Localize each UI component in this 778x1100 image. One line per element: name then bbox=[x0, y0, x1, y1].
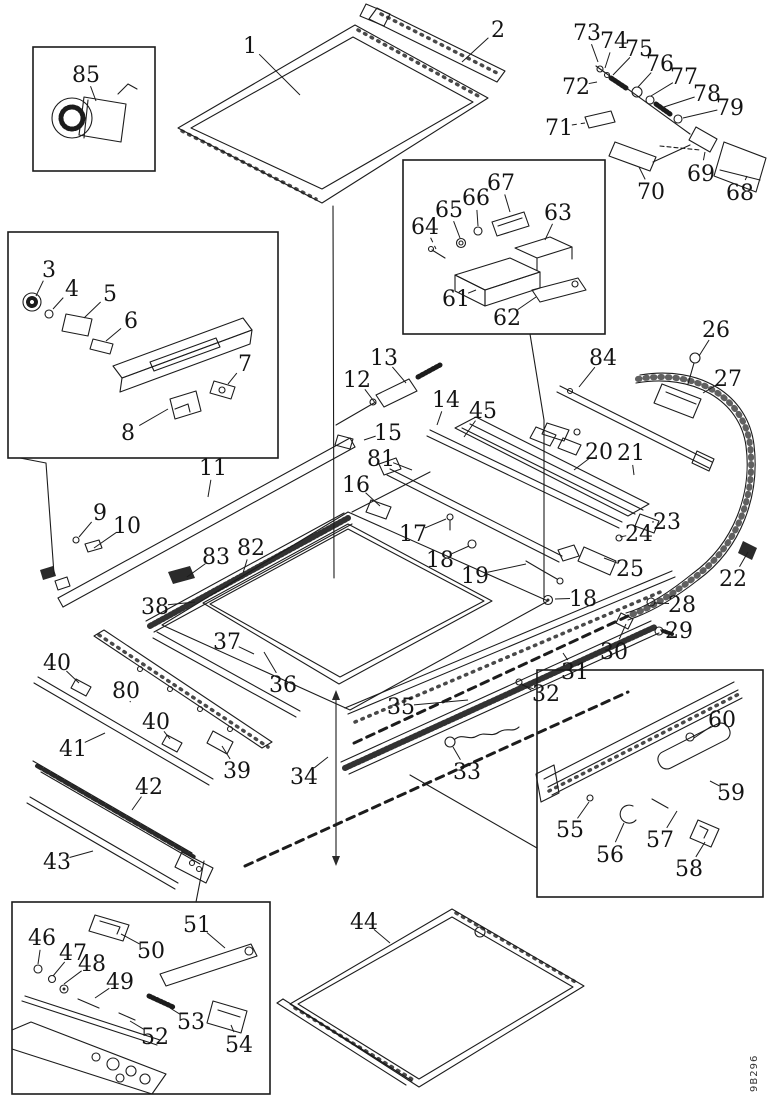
callout-79: 79 bbox=[716, 96, 744, 121]
callout-40: 40 bbox=[43, 651, 71, 676]
leader-line-35 bbox=[414, 700, 468, 705]
callout-50: 50 bbox=[137, 939, 165, 964]
leader-line-78 bbox=[664, 97, 695, 107]
callout-67: 67 bbox=[487, 171, 515, 196]
callout-30: 30 bbox=[600, 640, 628, 665]
leader-line-18 bbox=[452, 546, 469, 554]
leader-line-9 bbox=[79, 522, 92, 537]
callout-36: 36 bbox=[269, 673, 297, 698]
diagram-page: 1234567891011121314151617181918202122232… bbox=[0, 0, 778, 1100]
callout-20: 20 bbox=[585, 440, 613, 465]
callout-53: 53 bbox=[177, 1010, 205, 1035]
glass-panel bbox=[178, 25, 488, 203]
figure-code: 9B296 bbox=[749, 1055, 760, 1092]
callout-5: 5 bbox=[103, 282, 117, 307]
callout-17: 17 bbox=[399, 522, 427, 547]
callout-29: 29 bbox=[665, 619, 693, 644]
leader-line-7 bbox=[228, 373, 237, 384]
callout-12: 12 bbox=[343, 368, 371, 393]
callout-24: 24 bbox=[625, 522, 653, 547]
callout-18: 18 bbox=[569, 587, 597, 612]
leader-line-17 bbox=[425, 519, 446, 528]
callout-31: 31 bbox=[561, 660, 589, 685]
leader-line-19 bbox=[488, 564, 526, 572]
leader-line-14 bbox=[437, 411, 442, 425]
callout-42: 42 bbox=[135, 775, 163, 800]
callout-54: 54 bbox=[225, 1033, 253, 1058]
leader-line-57 bbox=[667, 811, 677, 828]
leader-line-71 bbox=[572, 123, 585, 125]
callout-15: 15 bbox=[374, 421, 402, 446]
leader-line-65 bbox=[454, 221, 460, 238]
leader-line-56 bbox=[615, 823, 624, 842]
leader-line-5 bbox=[84, 302, 101, 318]
callout-27: 27 bbox=[714, 367, 742, 392]
diagram-artwork bbox=[12, 4, 766, 1094]
leader-line-11 bbox=[208, 480, 211, 497]
callout-60: 60 bbox=[708, 708, 736, 733]
callout-3: 3 bbox=[42, 258, 56, 283]
callout-21: 21 bbox=[617, 441, 645, 466]
callout-35: 35 bbox=[387, 695, 415, 720]
leader-line-66 bbox=[477, 210, 478, 226]
callout-56: 56 bbox=[596, 843, 624, 868]
callout-39: 39 bbox=[223, 759, 251, 784]
sunroof-frame bbox=[153, 512, 548, 717]
leader-line-2 bbox=[462, 38, 488, 62]
callout-44: 44 bbox=[350, 910, 378, 935]
callout-55: 55 bbox=[556, 818, 584, 843]
callout-28: 28 bbox=[668, 593, 696, 618]
leader-line-69 bbox=[703, 152, 705, 160]
leader-line-4 bbox=[53, 298, 63, 309]
callout-52: 52 bbox=[141, 1025, 169, 1050]
leader-line-55 bbox=[577, 802, 589, 818]
callout-25: 25 bbox=[616, 557, 644, 582]
callout-13: 13 bbox=[370, 346, 398, 371]
callout-57: 57 bbox=[646, 828, 674, 853]
leader-line-46 bbox=[38, 950, 40, 964]
callout-58: 58 bbox=[675, 857, 703, 882]
leader-line-79 bbox=[683, 110, 717, 118]
cable-clip-71 bbox=[585, 111, 615, 128]
callout-2: 2 bbox=[491, 18, 505, 43]
leader-line-72 bbox=[589, 82, 597, 84]
callout-84: 84 bbox=[589, 346, 617, 371]
callout-63: 63 bbox=[544, 201, 572, 226]
callout-40: 40 bbox=[142, 710, 170, 735]
callout-18: 18 bbox=[426, 548, 454, 573]
callout-22: 22 bbox=[719, 567, 747, 592]
leader-line-41 bbox=[85, 733, 105, 742]
callout-26: 26 bbox=[702, 318, 730, 343]
callout-9: 9 bbox=[93, 501, 107, 526]
callout-51: 51 bbox=[183, 913, 211, 938]
callout-10: 10 bbox=[113, 514, 141, 539]
callout-32: 32 bbox=[532, 682, 560, 707]
callout-4: 4 bbox=[65, 277, 79, 302]
callout-34: 34 bbox=[290, 765, 318, 790]
callout-37: 37 bbox=[213, 630, 241, 655]
leader-line-58 bbox=[696, 842, 705, 857]
callout-45: 45 bbox=[469, 399, 497, 424]
callout-49: 49 bbox=[106, 970, 134, 995]
leader-line-74 bbox=[605, 52, 610, 68]
callout-68: 68 bbox=[726, 181, 754, 206]
callout-70: 70 bbox=[637, 180, 665, 205]
callout-62: 62 bbox=[493, 306, 521, 331]
callout-66: 66 bbox=[462, 186, 490, 211]
callout-7: 7 bbox=[238, 352, 252, 377]
leader-line-28 bbox=[654, 603, 669, 604]
leader-line-81 bbox=[393, 463, 412, 470]
callout-80: 80 bbox=[112, 679, 140, 704]
callout-6: 6 bbox=[124, 309, 138, 334]
callout-81: 81 bbox=[367, 447, 395, 472]
callout-85: 85 bbox=[72, 63, 100, 88]
bracket-69 bbox=[689, 127, 717, 152]
callout-59: 59 bbox=[717, 781, 745, 806]
leader-line-3 bbox=[36, 281, 43, 296]
callout-48: 48 bbox=[78, 952, 106, 977]
leader-line-8 bbox=[139, 409, 168, 426]
bracket-70 bbox=[609, 142, 656, 171]
callout-16: 16 bbox=[342, 473, 370, 498]
callout-19: 19 bbox=[461, 564, 489, 589]
callout-83: 83 bbox=[202, 545, 230, 570]
leader-line-67 bbox=[505, 194, 510, 212]
exploded-parts-diagram: 1234567891011121314151617181918202122232… bbox=[0, 0, 778, 1100]
callout-43: 43 bbox=[43, 850, 71, 875]
figure-code-group: 9B296 bbox=[749, 1055, 760, 1092]
leader-line-43 bbox=[70, 851, 93, 858]
callout-41: 41 bbox=[59, 737, 87, 762]
callout-1: 1 bbox=[243, 34, 257, 59]
leader-line-21 bbox=[633, 465, 634, 475]
leader-line-37 bbox=[239, 647, 254, 654]
callout-38: 38 bbox=[141, 595, 169, 620]
callout-23: 23 bbox=[653, 510, 681, 535]
callout-74: 74 bbox=[600, 29, 628, 54]
leader-line-6 bbox=[106, 328, 121, 341]
callout-71: 71 bbox=[545, 116, 573, 141]
callout-82: 82 bbox=[237, 536, 265, 561]
callout-72: 72 bbox=[562, 75, 590, 100]
callout-69: 69 bbox=[687, 162, 715, 187]
leader-line-36 bbox=[264, 652, 276, 673]
sunshade-panel bbox=[277, 909, 584, 1087]
callout-8: 8 bbox=[121, 421, 135, 446]
callout-73: 73 bbox=[573, 21, 601, 46]
callout-61: 61 bbox=[442, 287, 470, 312]
callout-65: 65 bbox=[435, 198, 463, 223]
callout-11: 11 bbox=[199, 456, 227, 481]
leader-line-33 bbox=[453, 747, 460, 760]
callout-33: 33 bbox=[453, 760, 481, 785]
leader-line-73 bbox=[591, 44, 598, 62]
leader-line-18 bbox=[555, 598, 570, 599]
callout-46: 46 bbox=[28, 926, 56, 951]
motor-85 bbox=[52, 84, 137, 142]
callout-14: 14 bbox=[432, 388, 460, 413]
